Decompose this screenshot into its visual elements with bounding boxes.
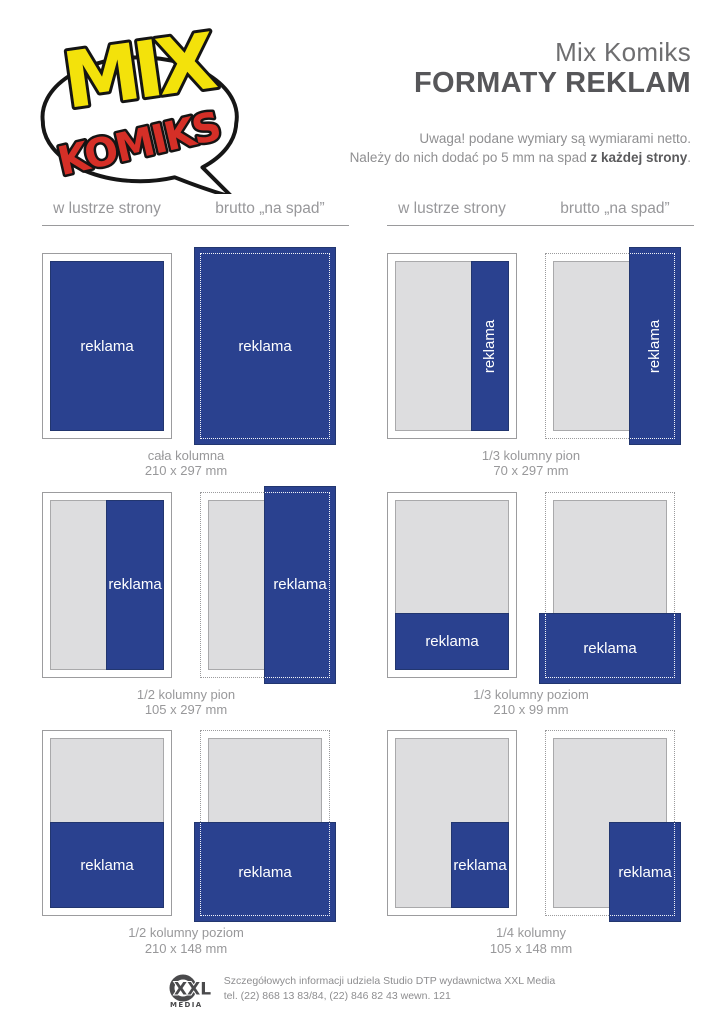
format-columns: w lustrze strony brutto „na spad” reklam…: [0, 200, 724, 956]
header: MIX KOMIKS Mix Komiks FORMATY REKLAM Uwa…: [0, 0, 724, 200]
ad-label: reklama: [238, 864, 291, 881]
speech-bubble-logo: MIX KOMIKS: [26, 2, 254, 194]
page-subtitle: FORMATY REKLAM: [414, 67, 691, 99]
xxl-media-logo-svg: XXL MEDIA: [169, 974, 215, 1010]
page-bleed: reklama: [200, 730, 330, 916]
ad-label: reklama: [80, 857, 133, 874]
column-right: w lustrze strony brutto „na spad” reklam…: [387, 200, 694, 956]
format-size: 105 x 148 mm: [387, 941, 675, 956]
ad-area-mirror: reklama: [451, 822, 509, 908]
ad-label: reklama: [482, 319, 499, 372]
title-block: Mix Komiks FORMATY REKLAM: [414, 38, 691, 99]
logo-text-media: MEDIA: [170, 1001, 203, 1009]
format-caption: 1/3 kolumny pion 70 x 297 mm: [387, 448, 675, 479]
ad-area-bleed: reklama: [609, 822, 681, 922]
note-line1: Uwaga! podane wymiary są wymiarami netto…: [419, 131, 691, 146]
footer-line2: tel. (22) 868 13 83/84, (22) 846 82 43 w…: [224, 989, 555, 1004]
column-headers: w lustrze strony brutto „na spad”: [387, 200, 694, 218]
format-mockups: reklama reklama: [42, 492, 349, 678]
format-name: 1/3 kolumny poziom: [387, 687, 675, 702]
format-size: 70 x 297 mm: [387, 463, 675, 478]
note-line2-bold: z każdej strony: [590, 150, 687, 165]
format-name: 1/2 kolumny poziom: [42, 925, 330, 940]
format-cell-cala-kolumna: reklama reklama cała kolumna 210 x 297 m…: [42, 253, 349, 479]
ad-area-bleed: reklama: [194, 247, 336, 445]
ad-area-bleed: reklama: [264, 486, 336, 684]
formats-sheet: { "logo": { "mix": "MIX", "komiks": "KOM…: [0, 0, 724, 1024]
format-cell-1-4: reklama reklama 1/4 kolumny 105 x 148 mm: [387, 730, 694, 956]
format-size: 210 x 148 mm: [42, 941, 330, 956]
ad-label: reklama: [425, 633, 478, 650]
header-rule: [42, 225, 349, 226]
format-cell-1-3-pion: reklama reklama 1/3 kolumny pion 70 x 29…: [387, 253, 694, 479]
page-mirror: reklama: [42, 492, 172, 678]
page-mirror: reklama: [42, 253, 172, 439]
format-mockups: reklama reklama: [42, 253, 349, 439]
page-title: Mix Komiks: [414, 38, 691, 67]
ad-area-bleed: reklama: [629, 247, 681, 445]
page-bleed: reklama: [545, 730, 675, 916]
ad-label: reklama: [108, 576, 161, 593]
header-mirror: w lustrze strony: [387, 200, 517, 218]
footer-contact: Szczegółowych informacji udziela Studio …: [224, 974, 555, 1003]
note-line2-prefix: Należy do nich dodać po 5 mm na spad: [350, 150, 591, 165]
page-bleed: reklama: [545, 492, 675, 678]
format-size: 210 x 99 mm: [387, 702, 675, 717]
page-mirror: reklama: [387, 253, 517, 439]
note-line2-suffix: .: [687, 150, 691, 165]
header-rule: [387, 225, 694, 226]
ad-area-mirror: reklama: [50, 261, 164, 431]
header-bleed: brutto „na spad”: [545, 200, 685, 218]
ad-label: reklama: [238, 338, 291, 355]
column-headers: w lustrze strony brutto „na spad”: [42, 200, 349, 218]
format-mockups: reklama reklama: [387, 730, 694, 916]
page-bleed: reklama: [200, 492, 330, 678]
page-mirror: reklama: [387, 492, 517, 678]
page-mirror: reklama: [387, 730, 517, 916]
ad-area-bleed: reklama: [539, 613, 681, 684]
format-caption: 1/3 kolumny poziom 210 x 99 mm: [387, 687, 675, 718]
header-bleed: brutto „na spad”: [200, 200, 340, 218]
ad-label: reklama: [453, 857, 506, 874]
format-mockups: reklama reklama: [387, 492, 694, 678]
page-mirror: reklama: [42, 730, 172, 916]
ad-label: reklama: [583, 640, 636, 657]
ad-label: reklama: [80, 338, 133, 355]
format-name: cała kolumna: [42, 448, 330, 463]
footer-line1: Szczegółowych informacji udziela Studio …: [224, 974, 555, 989]
format-name: 1/3 kolumny pion: [387, 448, 675, 463]
format-cell-1-2-pion: reklama reklama 1/2 kolumny pion 105 x 2…: [42, 492, 349, 718]
logo-text-xxl: XXL: [174, 979, 211, 999]
ad-area-mirror: reklama: [471, 261, 509, 431]
ad-area-mirror: reklama: [395, 613, 509, 670]
ad-label: reklama: [273, 576, 326, 593]
format-caption: 1/2 kolumny pion 105 x 297 mm: [42, 687, 330, 718]
format-mockups: reklama reklama: [42, 730, 349, 916]
page-bleed: reklama: [200, 253, 330, 439]
format-caption: 1/2 kolumny poziom 210 x 148 mm: [42, 925, 330, 956]
bleed-note: Uwaga! podane wymiary są wymiarami netto…: [350, 129, 691, 167]
format-caption: cała kolumna 210 x 297 mm: [42, 448, 330, 479]
format-size: 105 x 297 mm: [42, 702, 330, 717]
ad-label: reklama: [647, 319, 664, 372]
footer: XXL MEDIA Szczegółowych informacji udzie…: [0, 974, 724, 1015]
format-name: 1/4 kolumny: [387, 925, 675, 940]
column-left: w lustrze strony brutto „na spad” reklam…: [42, 200, 349, 956]
xxl-media-logo: XXL MEDIA: [169, 974, 215, 1015]
ad-area-bleed: reklama: [194, 822, 336, 922]
format-cell-1-3-poziom: reklama reklama 1/3 kolumny poziom 210 x…: [387, 492, 694, 718]
page-bleed: reklama: [545, 253, 675, 439]
format-mockups: reklama reklama: [387, 253, 694, 439]
format-caption: 1/4 kolumny 105 x 148 mm: [387, 925, 675, 956]
format-size: 210 x 297 mm: [42, 463, 330, 478]
ad-label: reklama: [618, 864, 671, 881]
ad-area-mirror: reklama: [106, 500, 164, 670]
format-name: 1/2 kolumny pion: [42, 687, 330, 702]
header-mirror: w lustrze strony: [42, 200, 172, 218]
ad-area-mirror: reklama: [50, 822, 164, 908]
mix-komiks-logo: MIX KOMIKS: [26, 2, 254, 199]
format-cell-1-2-poziom: reklama reklama 1/2 kolumny poziom 210 x…: [42, 730, 349, 956]
